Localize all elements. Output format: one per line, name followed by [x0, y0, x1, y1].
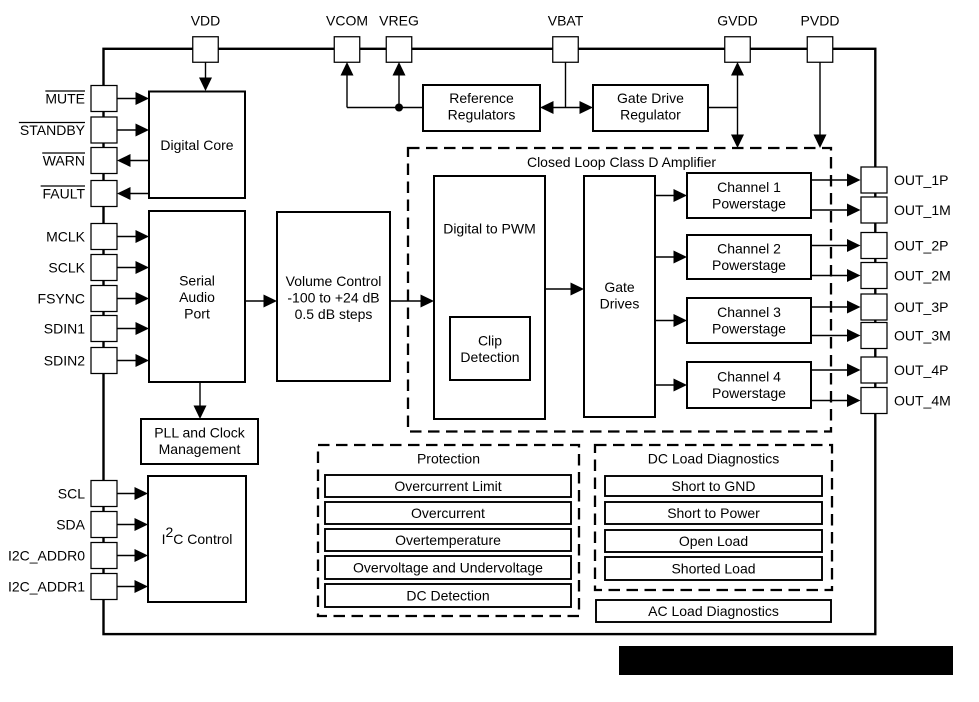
svg-text:Digital Core: Digital Core: [160, 137, 233, 153]
svg-text:Short to Power: Short to Power: [667, 505, 760, 521]
svg-text:Open Load: Open Load: [679, 533, 748, 549]
svg-text:Gate Drive: Gate Drive: [617, 90, 684, 106]
svg-text:Powerstage: Powerstage: [712, 321, 786, 337]
svg-text:OUT_4M: OUT_4M: [894, 392, 951, 408]
svg-text:WARN: WARN: [43, 152, 85, 168]
svg-text:Clip: Clip: [478, 333, 502, 349]
svg-text:Channel 2: Channel 2: [717, 241, 781, 257]
svg-text:DC Detection: DC Detection: [406, 587, 489, 603]
svg-text:Digital to PWM: Digital to PWM: [443, 221, 536, 237]
svg-text:OUT_4P: OUT_4P: [894, 362, 948, 378]
svg-text:Regulators: Regulators: [448, 107, 516, 123]
svg-text:Overvoltage and Undervoltage: Overvoltage and Undervoltage: [353, 559, 543, 575]
svg-text:Management: Management: [159, 441, 241, 457]
svg-text:Channel 3: Channel 3: [717, 304, 781, 320]
svg-text:Regulator: Regulator: [620, 107, 681, 123]
svg-text:Powerstage: Powerstage: [712, 385, 786, 401]
svg-text:Gate: Gate: [604, 279, 635, 295]
svg-text:FAULT: FAULT: [42, 185, 85, 201]
svg-text:OUT_2P: OUT_2P: [894, 237, 948, 253]
svg-text:Audio: Audio: [179, 289, 215, 305]
svg-text:SCLK: SCLK: [48, 259, 85, 275]
svg-text:I2C_ADDR1: I2C_ADDR1: [8, 578, 85, 594]
svg-text:Channel 4: Channel 4: [717, 369, 781, 385]
svg-text:VBAT: VBAT: [548, 13, 584, 29]
svg-text:FSYNC: FSYNC: [38, 290, 85, 306]
svg-text:STANDBY: STANDBY: [20, 122, 86, 138]
svg-text:Serial: Serial: [179, 273, 215, 289]
svg-text:Reference: Reference: [449, 90, 514, 106]
svg-text:PLL and Clock: PLL and Clock: [154, 425, 246, 441]
svg-text:SDIN1: SDIN1: [44, 320, 85, 336]
svg-text:OUT_1P: OUT_1P: [894, 172, 948, 188]
svg-text:SDA: SDA: [56, 516, 85, 532]
svg-text:Channel 1: Channel 1: [717, 179, 781, 195]
svg-text:Volume Control: Volume Control: [286, 273, 382, 289]
svg-text:Drives: Drives: [600, 296, 640, 312]
svg-text:Shorted Load: Shorted Load: [671, 560, 755, 576]
svg-text:VCOM: VCOM: [326, 13, 368, 29]
svg-text:Short to GND: Short to GND: [671, 478, 755, 494]
svg-text:Powerstage: Powerstage: [712, 257, 786, 273]
svg-text:PVDD: PVDD: [801, 13, 840, 29]
svg-text:DC Load Diagnostics: DC Load Diagnostics: [648, 451, 780, 467]
svg-text:SDIN2: SDIN2: [44, 352, 85, 368]
svg-text:-100 to +24 dB: -100 to +24 dB: [287, 290, 379, 306]
svg-text:VREG: VREG: [379, 13, 419, 29]
svg-text:AC Load Diagnostics: AC Load Diagnostics: [648, 603, 779, 619]
svg-text:0.5 dB steps: 0.5 dB steps: [295, 306, 373, 322]
svg-text:SCL: SCL: [58, 485, 85, 501]
svg-text:OUT_1M: OUT_1M: [894, 202, 951, 218]
svg-text:OUT_3M: OUT_3M: [894, 327, 951, 343]
svg-text:I2C_ADDR0: I2C_ADDR0: [8, 547, 85, 563]
svg-text:GVDD: GVDD: [717, 13, 757, 29]
svg-text:Overcurrent: Overcurrent: [411, 505, 485, 521]
svg-text:Overcurrent Limit: Overcurrent Limit: [394, 478, 501, 494]
svg-text:OUT_2M: OUT_2M: [894, 267, 951, 283]
svg-text:Overtemperature: Overtemperature: [395, 532, 501, 548]
svg-text:Detection: Detection: [460, 349, 519, 365]
svg-text:VDD: VDD: [191, 13, 221, 29]
svg-text:OUT_3P: OUT_3P: [894, 299, 948, 315]
svg-text:Protection: Protection: [417, 451, 480, 467]
svg-text:Port: Port: [184, 306, 210, 322]
svg-text:MCLK: MCLK: [46, 228, 86, 244]
svg-text:Powerstage: Powerstage: [712, 196, 786, 212]
svg-text:Closed Loop Class D Amplifier: Closed Loop Class D Amplifier: [527, 154, 716, 170]
svg-text:MUTE: MUTE: [45, 90, 85, 106]
